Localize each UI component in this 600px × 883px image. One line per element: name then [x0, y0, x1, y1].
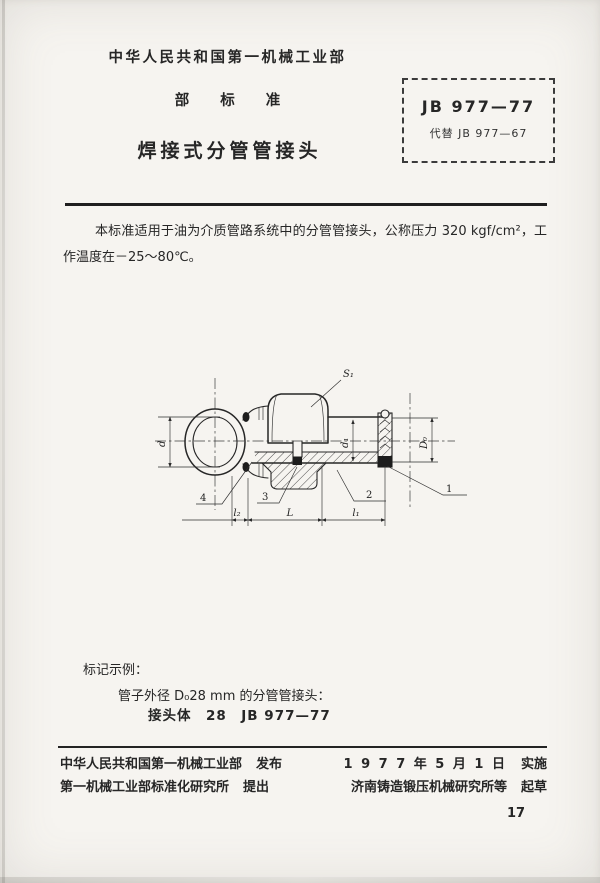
standard-code: JB 977—77	[404, 97, 553, 116]
footer-proposer-group: 第一机械工业部标准化研究所 提出	[60, 776, 269, 795]
part-label-1: 1	[446, 484, 452, 495]
footer-publisher-group: 中华人民共和国第一机械工业部 发布	[60, 753, 282, 772]
technical-drawing: d d₁ D₀ S₁ 4 3 2 1	[140, 350, 470, 540]
dim-label-l2: l₂	[233, 508, 240, 519]
center-lines	[155, 378, 455, 510]
part-callouts: 4 3 2 1	[196, 462, 467, 504]
callout-s1: S₁	[311, 369, 354, 407]
weld-cone	[243, 406, 269, 478]
ministry-name: 中华人民共和国第一机械工业部	[35, 46, 420, 67]
marking-example-description: 管子外径 D₀28 mm 的分管管接头：	[118, 685, 331, 704]
header-divider-rule	[65, 203, 547, 206]
section-hatch-band	[255, 452, 378, 463]
document-title: 焊接式分管管接头	[35, 136, 420, 163]
weld-sleeve	[378, 410, 392, 467]
dimension-D0: D₀	[392, 418, 438, 462]
hex-body	[268, 394, 328, 443]
lower-hex-section	[262, 463, 326, 489]
marking-example-heading: 标记示例：	[83, 659, 148, 678]
dim-label-d1: d₁	[340, 438, 351, 448]
scan-edge-left	[2, 0, 5, 883]
footer-row-2: 第一机械工业部标准化研究所 提出 济南铸造锻压机械研究所等 起草	[60, 774, 547, 797]
footer-proposer-tag: 提出	[243, 776, 269, 795]
footer-publisher-tag: 发布	[256, 753, 282, 772]
footer-drafter-tag: 起草	[521, 776, 547, 795]
dim-label-s1: S₁	[343, 369, 354, 380]
footer-date-tag: 实施	[521, 753, 547, 772]
footer-proposer: 第一机械工业部标准化研究所	[60, 776, 229, 795]
footer-row-1: 中华人民共和国第一机械工业部 发布 1 9 7 7 年 5 月 1 日 实施	[60, 751, 547, 774]
page-number: 17	[507, 806, 525, 821]
part-label-2: 2	[366, 490, 372, 501]
standard-number-stamp: JB 977—77 代替 JB 977—67	[402, 78, 555, 163]
footer-drafter: 济南铸造锻压机械研究所等	[351, 776, 507, 795]
standard-document-page: 中华人民共和国第一机械工业部 部标准 焊接式分管管接头 JB 977—77 代替…	[0, 0, 600, 883]
marking-example-designation: 接头体 28 JB 977—77	[148, 704, 331, 724]
standard-type-label: 部标准	[35, 89, 420, 110]
scope-paragraph: 本标准适用于油为介质管路系统中的分管管接头，公称压力 320 kgf/cm²，工…	[63, 219, 547, 271]
branch-bore	[293, 441, 303, 465]
dimension-d: d	[157, 417, 220, 467]
dim-label-l1: l₁	[352, 508, 359, 519]
part-label-4: 4	[200, 493, 206, 504]
dim-label-D0: D₀	[419, 437, 430, 450]
part-label-3: 3	[262, 492, 268, 503]
footer-drafter-group: 济南铸造锻压机械研究所等 起草	[351, 776, 547, 795]
dim-label-d: d	[157, 441, 168, 447]
footer-date-group: 1 9 7 7 年 5 月 1 日 实施	[344, 753, 548, 772]
footer-block: 中华人民共和国第一机械工业部 发布 1 9 7 7 年 5 月 1 日 实施 第…	[60, 751, 547, 797]
footer-divider-rule	[58, 746, 547, 748]
scan-edge-bottom	[0, 877, 600, 883]
footer-implementation-date: 1 9 7 7 年 5 月 1 日	[344, 753, 507, 772]
replaced-standard: 代替 JB 977—67	[404, 125, 553, 141]
dim-label-L: L	[286, 508, 294, 519]
footer-publisher: 中华人民共和国第一机械工业部	[60, 753, 242, 772]
